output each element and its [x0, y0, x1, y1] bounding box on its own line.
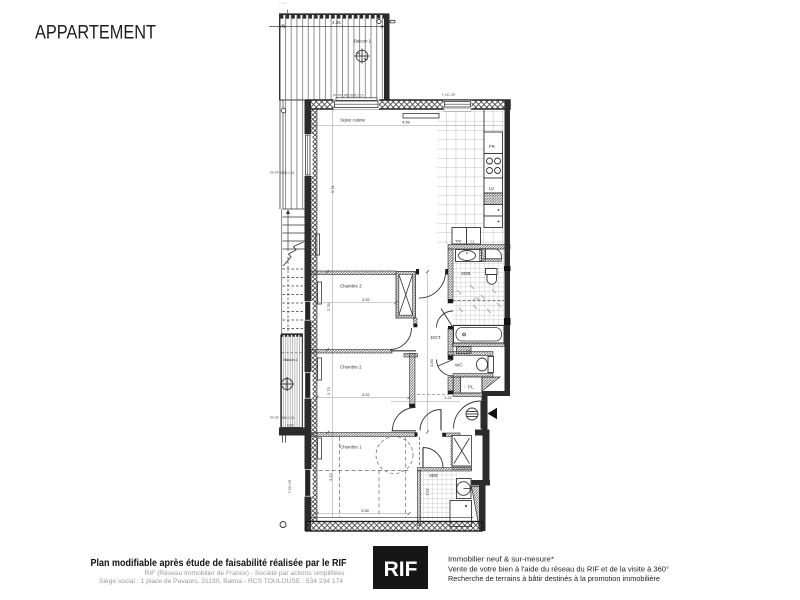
- svg-text:3.58: 3.58: [361, 508, 370, 513]
- svg-text:RIF: RIF: [384, 558, 418, 581]
- svg-text:FR: FR: [489, 144, 495, 149]
- svg-text:Plan modifiable après étude de: Plan modifiable après étude de faisabili…: [91, 558, 347, 569]
- svg-text:PF-PF 345/165/L2.15: PF-PF 345/165/L2.15: [333, 94, 364, 98]
- svg-text:3.12: 3.12: [328, 472, 333, 481]
- svg-text:2.24: 2.24: [445, 396, 452, 400]
- svg-text:Siège social : 1 place de Pava: Siège social : 1 place de Pavaurs, 31130…: [99, 579, 344, 585]
- svg-text:Balcon 2: Balcon 2: [284, 358, 298, 362]
- svg-text:PF-PF 365/L1.15: PF-PF 365/L1.15: [270, 416, 295, 420]
- svg-text:2.73: 2.73: [326, 386, 331, 395]
- svg-text:4.35: 4.35: [332, 20, 341, 25]
- svg-text:1.63: 1.63: [426, 489, 430, 496]
- svg-text:Balcon 1: Balcon 1: [354, 39, 372, 44]
- svg-text:F-OC-VR: F-OC-VR: [442, 93, 456, 97]
- svg-text:DGT: DGT: [431, 335, 441, 341]
- svg-text:APPARTEMENT: APPARTEMENT: [35, 23, 156, 44]
- svg-text:4.83: 4.83: [429, 358, 434, 367]
- svg-text:LV: LV: [489, 186, 494, 191]
- svg-text:3.52: 3.52: [362, 392, 371, 397]
- svg-text:3.52: 3.52: [362, 297, 371, 302]
- svg-text:Chambre 3: Chambre 3: [340, 284, 362, 289]
- svg-text:Vente de votre bien à l'aide d: Vente de votre bien à l'aide du réseau d…: [448, 566, 669, 574]
- svg-text:SDB: SDB: [461, 271, 470, 276]
- svg-text:SDE: SDE: [429, 473, 438, 478]
- svg-text:TRI: TRI: [455, 240, 461, 244]
- svg-text:LL: LL: [471, 240, 475, 244]
- svg-text:RIF (Réseau Immobilier de Fran: RIF (Réseau Immobilier de France) - Soci…: [145, 571, 345, 577]
- svg-text:Chambre 1: Chambre 1: [340, 445, 362, 450]
- svg-text:+ s.st: + s.st: [279, 1, 286, 5]
- svg-text:1.74: 1.74: [473, 297, 479, 301]
- svg-text:PL: PL: [468, 385, 474, 390]
- svg-text:Recherche de terrains à bâtir: Recherche de terrains à bâtir destinés à…: [448, 576, 660, 583]
- svg-text:F-OC-VR: F-OC-VR: [288, 479, 292, 493]
- svg-text:Immobilier neuf & sur-mesure*: Immobilier neuf & sur-mesure*: [448, 557, 554, 564]
- svg-text:2.78: 2.78: [326, 302, 331, 311]
- svg-text:5.71: 5.71: [330, 184, 335, 193]
- svg-text:PF-PF 365/L1.15: PF-PF 365/L1.15: [270, 171, 295, 175]
- svg-text:Chambre 2: Chambre 2: [340, 365, 362, 370]
- svg-text:GSC: GSC: [287, 424, 295, 428]
- svg-text:4.58: 4.58: [402, 120, 411, 125]
- svg-text:Séjour cuisine: Séjour cuisine: [340, 118, 365, 123]
- svg-text:WC: WC: [455, 363, 463, 368]
